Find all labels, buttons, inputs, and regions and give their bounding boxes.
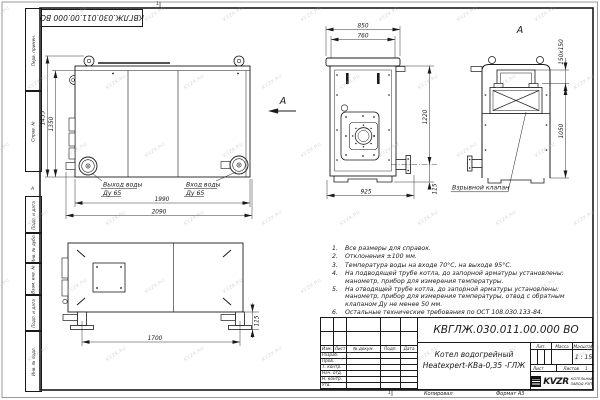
note-number: 5. <box>332 286 345 308</box>
view-side <box>45 56 296 219</box>
tb-cell <box>321 332 334 346</box>
dim-1220: 1220 <box>423 109 429 124</box>
lit-label: Лит. <box>531 343 552 350</box>
title-designation: КВГЛЖ.030.011.00.000 ВО <box>418 318 594 343</box>
company-name-line1: КОТЕЛЬНЫЙ <box>571 377 594 381</box>
tb-cell <box>347 383 381 389</box>
dim-115-front: 115 <box>433 183 439 194</box>
frame-box-podp-data-2: Подп. и дата <box>25 294 42 332</box>
tb-cell <box>381 332 401 346</box>
tb-cell <box>381 383 401 389</box>
inlet-size: Ду 65 <box>185 190 204 197</box>
dim-1350: 1350 <box>49 116 55 131</box>
note-text: Температура воды на входе 70°С, на выход… <box>345 262 590 269</box>
title-block: Изм. Лист № докум. Подп. Дата Разраб. Пр… <box>320 317 593 390</box>
mass-value <box>552 350 573 365</box>
tb-cell <box>321 318 334 332</box>
sheets-cell: Листов 1 <box>557 365 594 372</box>
view-top <box>62 243 259 346</box>
tb-row-utv: Утв. <box>321 383 347 389</box>
company-logo-text: KVZR <box>543 377 568 387</box>
note-item: 5.На отводящей трубе котла, до запорной … <box>332 286 590 308</box>
frame-box-label: Подп. и дата <box>31 299 36 328</box>
dim-1700: 1700 <box>148 336 163 342</box>
note-number: 2. <box>332 253 345 260</box>
corner-designation: КВГЛЖ.030.011.00.000 ВО <box>41 9 143 27</box>
note-number: 3. <box>332 262 345 269</box>
scale-label: Масштаб <box>573 343 594 350</box>
outlet-label: Выход воды <box>103 182 143 189</box>
company-name: КОТЕЛЬНЫЙ ЗАВОД РЭП <box>571 377 594 386</box>
frame-box-label: Взам. инв. № <box>31 265 36 293</box>
note-item: 1.Все размеры для справок. <box>332 245 590 252</box>
note-number: 1. <box>332 245 345 252</box>
tb-cell <box>401 332 418 346</box>
product-name-line2: Heatexpert-КВа-0,35 -ГЛЖ <box>418 361 530 372</box>
drawing-sheet: 1990 2090 1455 1350 Выход воды Ду 65 Вхо… <box>0 0 600 400</box>
explosion-valve-callout: Взрывной клапан <box>452 185 509 192</box>
tb-cell <box>401 383 418 389</box>
note-text: Отклонения ±100 мм. <box>345 253 590 260</box>
frame-box-inv-podl: Инв. № подл. <box>25 330 42 392</box>
note-item: 3.Температура воды на входе 70°С, на вых… <box>332 262 590 269</box>
tb-col-data: Дата <box>401 346 418 353</box>
sheets-label: Листов <box>563 366 579 371</box>
dim-925: 925 <box>360 189 371 195</box>
outlet-size: Ду 65 <box>102 190 121 197</box>
zone-number-bottom: 1 <box>388 391 391 396</box>
lit-cell-1 <box>531 350 538 365</box>
product-name: Котел водогрейный Heatexpert-КВа-0,35 -Г… <box>418 343 531 391</box>
lit-cell-3 <box>545 350 552 365</box>
company-name-line2: ЗАВОД РЭП <box>571 382 594 386</box>
sheet-label: Лист <box>531 365 557 372</box>
title-block-change-grid: Изм. Лист № докум. Подп. Дата Разраб. Пр… <box>321 318 418 389</box>
frame-box-perv-primen: Перв. примен. <box>25 8 42 92</box>
mass-label: Масса <box>552 343 573 350</box>
frame-box-podp-data-1: Подп. и дата <box>25 196 42 234</box>
note-text: Все размеры для справок. <box>345 245 590 252</box>
tb-col-podp: Подп. <box>381 346 401 353</box>
note-number: 6. <box>332 309 345 316</box>
scale-value: 1 : 15 <box>573 350 594 365</box>
view-a <box>451 57 569 192</box>
dim-115-top: 115 <box>255 315 261 326</box>
note-text: На подводящей трубе котла, до запорной а… <box>345 270 590 285</box>
title-block-right: Лит. Масса Масштаб 1 : 15 Лист Листов 1 … <box>531 343 594 391</box>
frame-box-label: Подп. и дата <box>31 201 36 230</box>
tb-cell <box>347 332 381 346</box>
inlet-label: Вход воды <box>186 182 221 189</box>
product-name-line1: Котел водогрейный <box>418 350 530 361</box>
note-number: 4. <box>332 270 345 285</box>
sheets-value: 1 <box>585 366 588 371</box>
tb-cell <box>334 332 347 346</box>
frame-box-label: Перв. примен. <box>31 34 36 65</box>
dim-150x150: 150х150 <box>559 39 565 65</box>
view-front <box>326 26 437 199</box>
company-logo-icon <box>531 376 541 387</box>
format-label: Формат А3 <box>496 391 524 397</box>
tb-col-docnum: № докум. <box>347 346 381 353</box>
frame-box-label: Справ. № <box>31 121 36 141</box>
frame-box-inv-dubl: Инв. № дубл. <box>25 232 42 264</box>
note-item: 2.Отклонения ±100 мм. <box>332 253 590 260</box>
dim-1050: 1050 <box>559 123 565 138</box>
dim-1990: 1990 <box>155 197 170 203</box>
frame-box-label: Инв. № дубл. <box>31 234 36 263</box>
dim-2090: 2090 <box>152 209 167 215</box>
technical-notes: 1.Все размеры для справок. 2.Отклонения … <box>332 245 590 317</box>
tb-cell <box>401 318 418 332</box>
zone-letter: А <box>31 187 34 192</box>
view-a-letter: А <box>516 25 524 36</box>
dim-760: 760 <box>357 33 368 39</box>
tb-cell <box>334 318 347 332</box>
lit-cell-2 <box>538 350 545 365</box>
note-text: На отводящей трубе котла, до запорной ар… <box>345 286 590 308</box>
copied-label: Копировал <box>424 391 453 397</box>
zone-number-top: 1 <box>156 2 159 7</box>
tb-col-list: Лист <box>334 346 347 353</box>
tb-col-izm: Изм. <box>321 346 334 353</box>
note-text: Остальные технические требования по ОСТ … <box>345 309 590 316</box>
tb-cell <box>347 318 381 332</box>
frame-box-sprav-no: Справ. № <box>25 90 42 172</box>
note-item: 6.Остальные технические требования по ОС… <box>332 309 590 316</box>
note-item: 4.На подводящей трубе котла, до запорной… <box>332 270 590 285</box>
company-cell: KVZR КОТЕЛЬНЫЙ ЗАВОД РЭП <box>531 372 594 391</box>
frame-box-label: Инв. № подл. <box>31 347 36 376</box>
frame-box-vzam-inv: Взам. инв. № <box>25 262 42 296</box>
view-arrow-letter: А <box>279 96 287 107</box>
dim-850: 850 <box>357 23 368 29</box>
tb-cell <box>381 318 401 332</box>
